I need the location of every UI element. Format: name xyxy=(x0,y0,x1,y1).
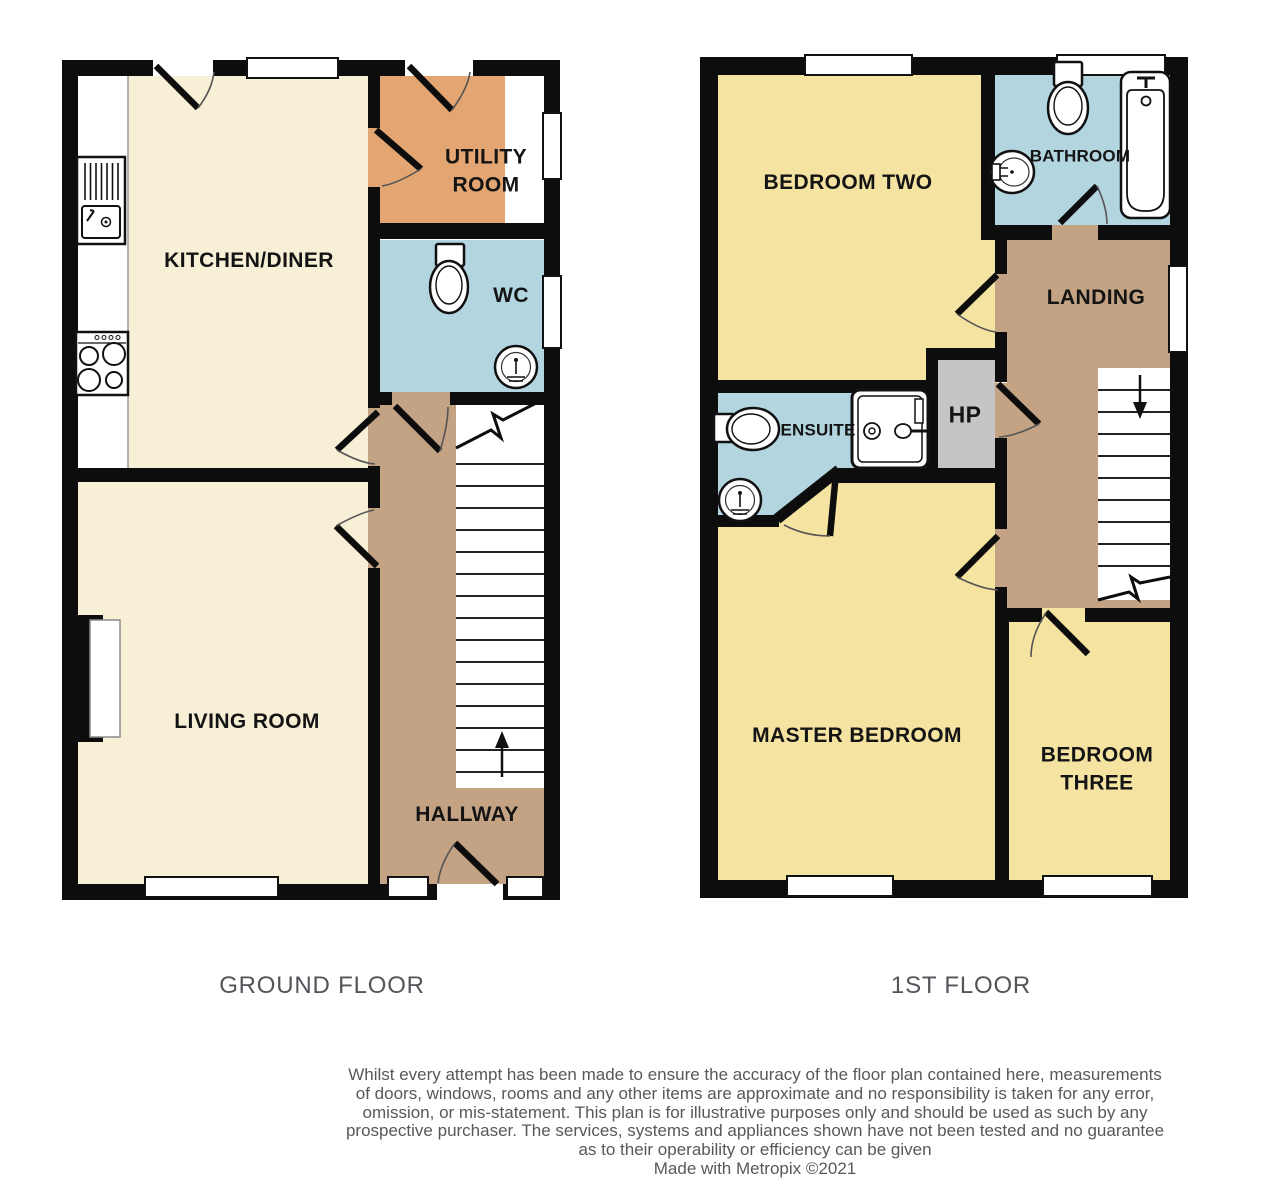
living-room-label: LIVING ROOM xyxy=(174,708,320,736)
bedroom-two-window xyxy=(805,55,912,75)
ground-floor-title: GROUND FLOOR xyxy=(219,972,425,1000)
disclaimer-line: omission, or mis-statement. This plan is… xyxy=(155,1104,1280,1123)
fireplace-hearth xyxy=(90,620,120,737)
wc-label: WC xyxy=(493,282,529,310)
living-room-window xyxy=(145,877,278,897)
master-bedroom-label: MASTER BEDROOM xyxy=(752,722,962,750)
bathroom-label: BATHROOM xyxy=(1030,146,1130,169)
disclaimer-line: of doors, windows, rooms and any other i… xyxy=(155,1085,1280,1104)
shower-icon xyxy=(852,390,928,468)
hallway-label: HALLWAY xyxy=(415,801,519,829)
wc-toilet-icon xyxy=(430,244,468,313)
made-with-credit: Made with Metropix ©2021 xyxy=(155,1160,1280,1179)
landing-label: LANDING xyxy=(1047,284,1145,312)
kitchen-counter xyxy=(78,76,128,468)
wc-pedestal-sink-icon xyxy=(495,346,537,388)
hp-label: HP xyxy=(949,399,982,430)
utility-window xyxy=(543,113,561,179)
utility-room-label: UTILITY ROOM xyxy=(445,144,527,201)
kitchen-sink-icon xyxy=(77,157,125,244)
disclaimer-line: prospective purchaser. The services, sys… xyxy=(155,1122,1280,1141)
kitchen-window xyxy=(247,58,338,78)
hob-icon xyxy=(76,332,128,395)
hallway-window-left xyxy=(388,877,428,897)
disclaimer-line: Whilst every attempt has been made to en… xyxy=(155,1066,1280,1085)
floorplan-canvas: KITCHEN/DINER UTILITY ROOM WC LIVING ROO… xyxy=(0,0,1280,1187)
bedroom-two-floor xyxy=(718,75,995,380)
disclaimer: Whilst every attempt has been made to en… xyxy=(155,1066,1280,1179)
master-bedroom-window xyxy=(787,876,893,896)
ensuite-label: ENSUITE xyxy=(780,420,855,443)
bedroom-two-label: BEDROOM TWO xyxy=(764,169,933,197)
living-room-floor xyxy=(78,482,372,884)
hallway-window-right xyxy=(507,877,543,897)
landing-window xyxy=(1169,266,1187,352)
disclaimer-line: as to their operability or efficiency ca… xyxy=(155,1141,1280,1160)
ensuite-pedestal-sink-icon xyxy=(719,479,761,521)
bathroom-oval-sink-icon xyxy=(990,151,1034,193)
wc-window xyxy=(543,276,561,348)
bedroom-three-label: BEDROOM THREE xyxy=(1041,742,1153,799)
kitchen-diner-label: KITCHEN/DINER xyxy=(164,247,334,275)
bedroom-three-window xyxy=(1043,876,1152,896)
bathroom-toilet-icon xyxy=(1048,62,1088,134)
first-floor-title: 1ST FLOOR xyxy=(891,972,1031,1000)
floorplan-drawing xyxy=(0,0,1280,1187)
